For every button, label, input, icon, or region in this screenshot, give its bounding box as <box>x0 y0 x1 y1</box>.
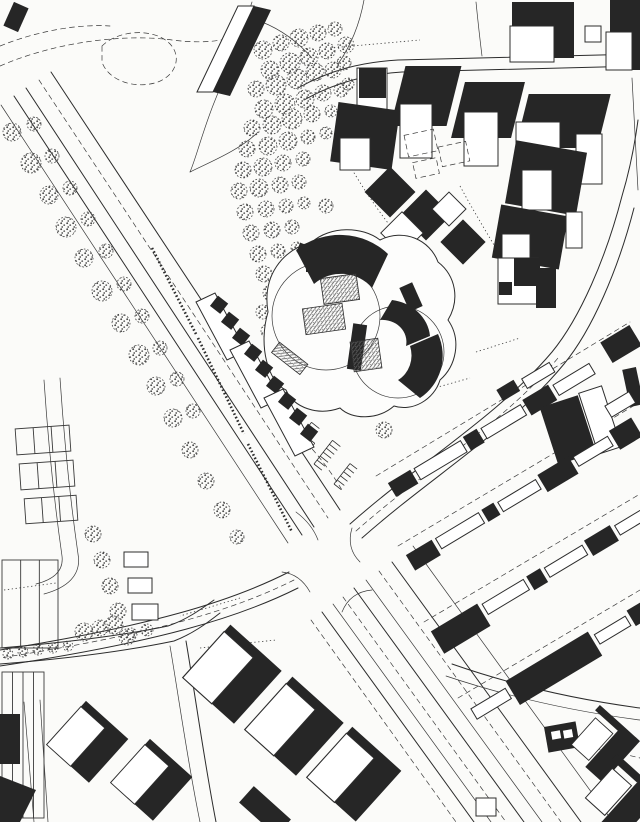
site-plan-drawing <box>0 0 640 822</box>
tree-symbol <box>319 199 333 213</box>
tree-symbol <box>248 81 264 97</box>
tree-symbol <box>239 141 255 157</box>
tree-symbol <box>250 246 266 262</box>
tree-symbol <box>259 137 277 155</box>
tree-symbol <box>3 649 13 659</box>
tree-symbol <box>279 132 297 150</box>
tree-symbol <box>125 628 137 640</box>
tree-symbol <box>263 116 281 134</box>
tree-symbol <box>198 473 214 489</box>
tree-symbol <box>258 201 274 217</box>
site-plan-scan <box>0 0 640 822</box>
tree-symbol <box>112 314 130 332</box>
tree-symbol <box>21 153 41 173</box>
tree-symbol <box>186 404 200 418</box>
tree-symbol <box>147 377 165 395</box>
tree-symbol <box>102 578 118 594</box>
tree-symbol <box>319 43 335 59</box>
tree-symbol <box>48 643 58 653</box>
tree-symbol <box>40 186 58 204</box>
tree-symbol <box>75 623 93 641</box>
garage-block <box>128 578 152 593</box>
tree-symbol <box>264 222 280 238</box>
parking-comb <box>334 464 357 490</box>
tree-symbol <box>292 175 306 189</box>
tree-symbol <box>153 341 167 355</box>
tree-symbol <box>328 22 342 36</box>
tree-symbol <box>99 244 113 258</box>
court <box>15 425 71 455</box>
tree-symbol <box>306 63 324 81</box>
tree-symbol <box>250 179 268 197</box>
tree-symbol <box>182 442 198 458</box>
tree-symbol <box>244 120 260 136</box>
tree-symbol <box>164 409 182 427</box>
parking-comb <box>314 440 340 470</box>
tree-symbol <box>129 345 149 365</box>
tree-symbol <box>27 117 41 131</box>
tree-symbol <box>237 204 253 220</box>
tree-symbol <box>285 220 299 234</box>
tree-symbol <box>63 641 73 651</box>
tree-symbol <box>56 217 76 237</box>
tree-symbol <box>296 90 314 108</box>
tree-symbol <box>310 25 326 41</box>
tree-symbol <box>94 552 110 568</box>
tree-symbol <box>230 530 244 544</box>
court <box>24 495 78 524</box>
tree-symbol <box>254 158 272 176</box>
tree-symbol <box>325 105 337 117</box>
tree-symbol <box>141 624 153 636</box>
tree-symbol <box>231 183 247 199</box>
tree-symbol <box>315 85 331 101</box>
tree-symbol <box>33 645 43 655</box>
tree-symbol <box>135 309 149 323</box>
top-left-slab-building <box>3 2 271 96</box>
tree-symbol <box>254 41 272 59</box>
tree-symbol <box>334 83 348 97</box>
tree-symbol <box>243 225 259 241</box>
tree-symbol <box>85 526 101 542</box>
tree-symbol <box>320 127 332 139</box>
tree-symbol <box>18 647 28 657</box>
tree-symbol <box>81 212 95 226</box>
tree-symbol <box>273 35 289 51</box>
tree-symbol <box>271 244 285 258</box>
tree-symbol <box>75 249 93 267</box>
garage-block <box>132 604 158 620</box>
tree-symbol <box>266 75 286 95</box>
tree-symbol <box>255 100 273 118</box>
tree-symbol <box>287 69 307 89</box>
tree-symbol <box>105 616 123 634</box>
tree-symbol <box>304 106 320 122</box>
tree-symbol <box>272 177 288 193</box>
field <box>2 560 58 648</box>
tree-symbol <box>325 62 341 78</box>
tree-symbol <box>296 152 310 166</box>
central-building-complex <box>264 230 456 417</box>
tree-symbol <box>3 123 21 141</box>
courtyard-hatch <box>320 274 359 305</box>
tree-symbol <box>92 281 112 301</box>
garage-block <box>124 552 148 567</box>
tree-symbol <box>45 149 59 163</box>
tree-symbol <box>298 197 310 209</box>
court <box>19 460 75 490</box>
tree-symbol <box>279 199 293 213</box>
tree-symbol <box>282 109 302 129</box>
garage-block <box>476 798 496 816</box>
tree-symbol <box>117 277 131 291</box>
tree-symbol <box>376 422 392 438</box>
tree-symbol <box>63 181 77 195</box>
tree-symbol <box>214 502 230 518</box>
tree-symbol <box>338 37 354 53</box>
tree-symbol <box>301 130 315 144</box>
tree-symbol <box>170 372 184 386</box>
tree-symbol <box>290 29 308 47</box>
tree-symbol <box>235 162 251 178</box>
tree-symbol <box>275 155 291 171</box>
